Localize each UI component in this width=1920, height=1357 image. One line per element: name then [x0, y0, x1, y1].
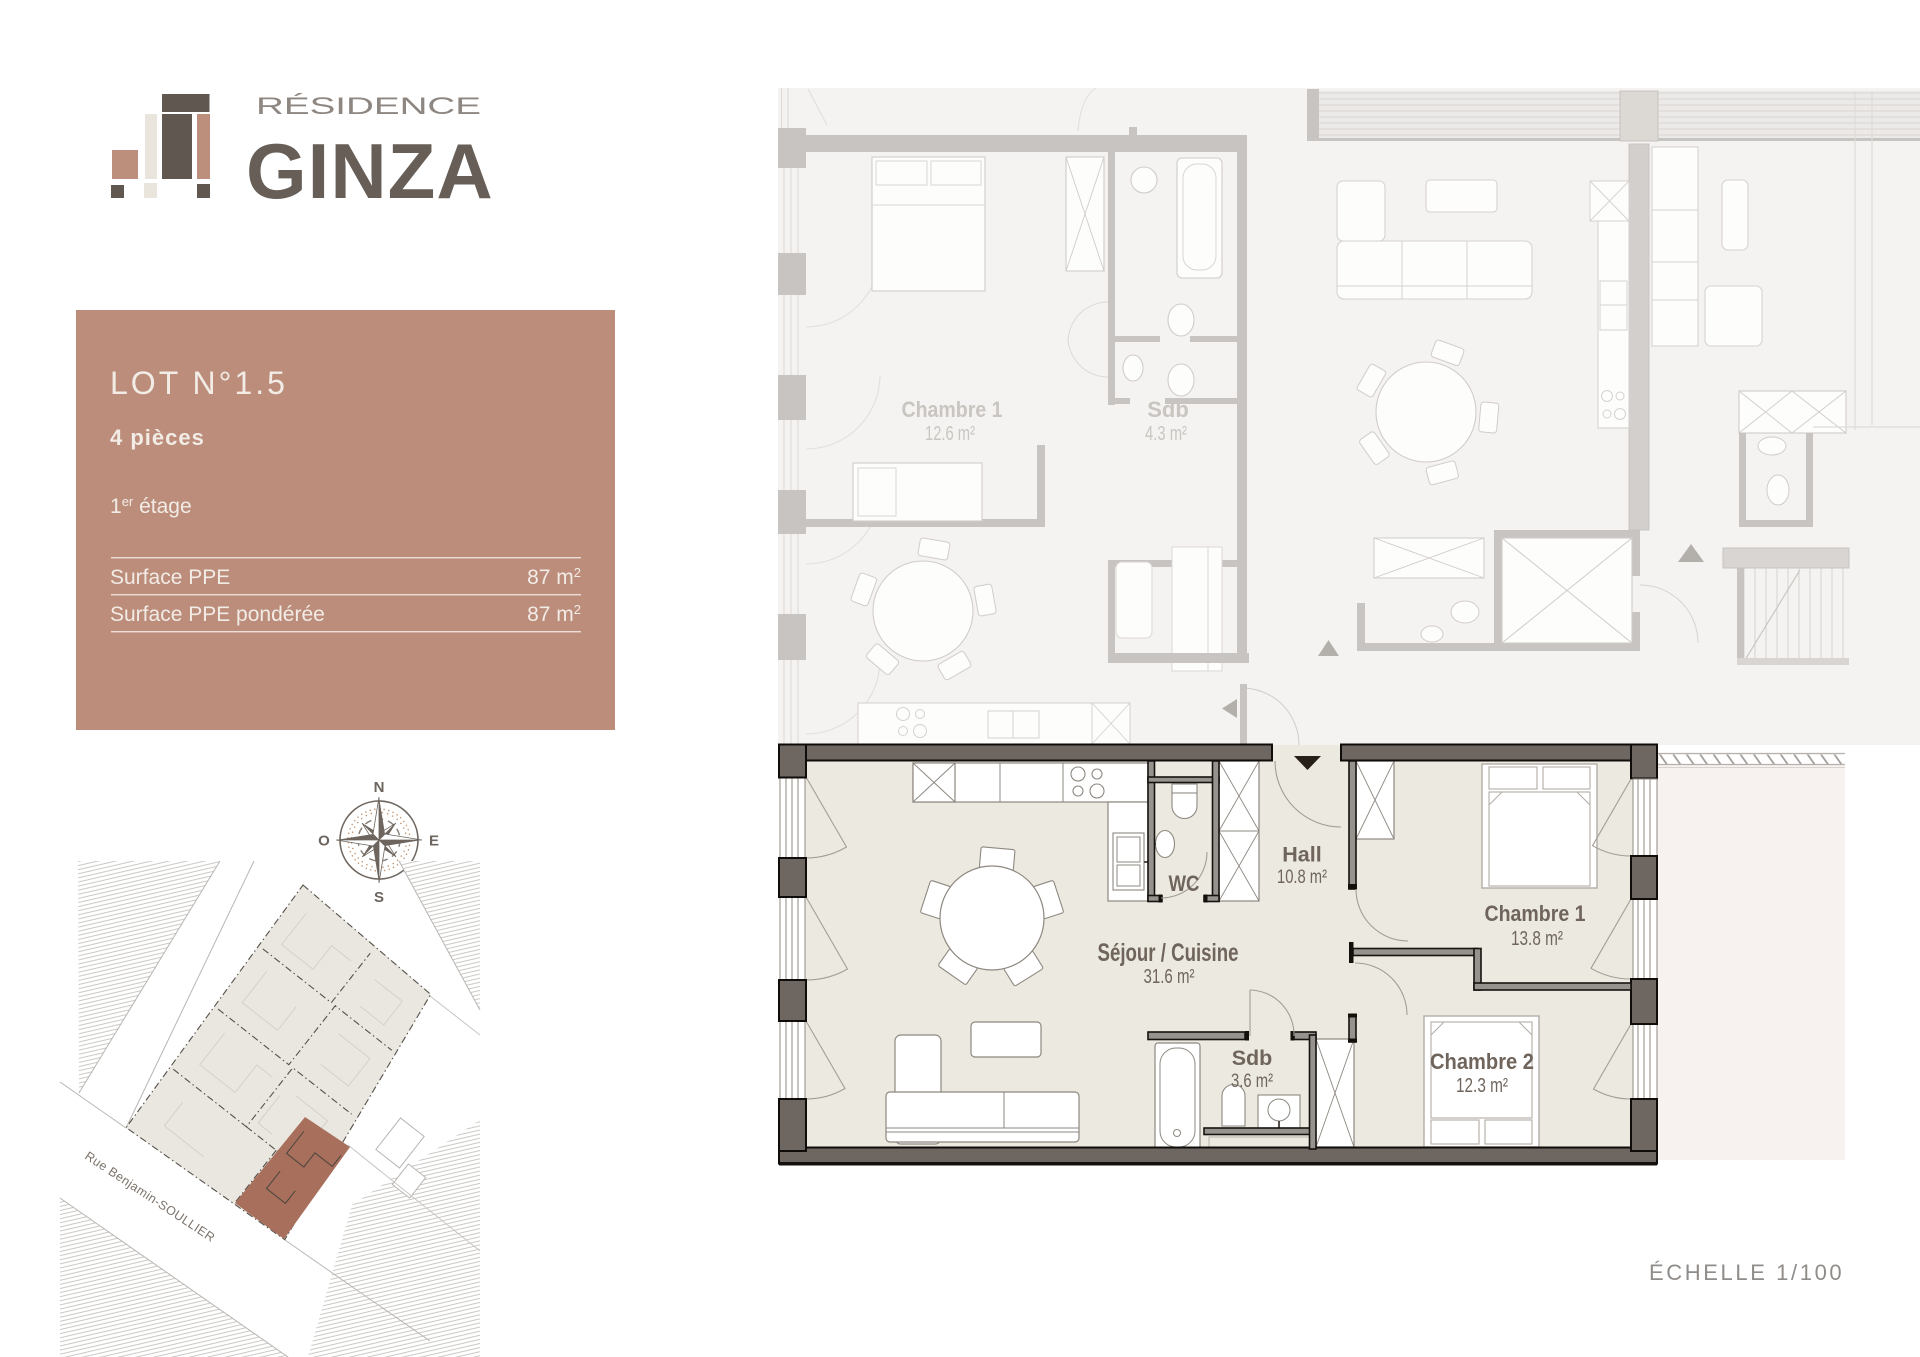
svg-text:N: N	[374, 779, 385, 796]
svg-text:Séjour / Cuisine: Séjour / Cuisine	[1098, 939, 1239, 967]
svg-text:87 m2: 87 m2	[527, 602, 581, 626]
svg-text:87 m2: 87 m2	[527, 565, 581, 589]
svg-text:Chambre 1: Chambre 1	[1485, 901, 1586, 926]
svg-text:RÉSIDENCE: RÉSIDENCE	[256, 93, 481, 120]
svg-text:Sdb: Sdb	[1147, 397, 1189, 422]
svg-text:GINZA: GINZA	[246, 127, 494, 215]
svg-text:31.6 m²: 31.6 m²	[1144, 966, 1195, 988]
svg-text:13.8 m²: 13.8 m²	[1511, 928, 1563, 950]
svg-text:ÉCHELLE 1/100: ÉCHELLE 1/100	[1649, 1260, 1844, 1285]
svg-text:10.8 m²: 10.8 m²	[1277, 866, 1327, 888]
svg-text:WC: WC	[1169, 871, 1200, 896]
svg-text:O: O	[318, 833, 330, 850]
svg-text:Surface PPE pondérée: Surface PPE pondérée	[110, 603, 325, 626]
svg-text:12.6 m²: 12.6 m²	[925, 423, 975, 445]
svg-text:3.6 m²: 3.6 m²	[1231, 1070, 1273, 1092]
svg-text:S: S	[374, 889, 384, 906]
svg-text:Sdb: Sdb	[1232, 1046, 1273, 1070]
svg-text:4 pièces: 4 pièces	[110, 425, 205, 450]
svg-text:Hall: Hall	[1282, 843, 1321, 867]
svg-text:Chambre 2: Chambre 2	[1430, 1049, 1534, 1074]
svg-text:E: E	[429, 833, 439, 850]
svg-text:12.3 m²: 12.3 m²	[1456, 1075, 1508, 1097]
svg-text:Surface PPE: Surface PPE	[110, 566, 230, 589]
svg-text:LOT N°1.5: LOT N°1.5	[110, 365, 288, 401]
svg-text:4.3 m²: 4.3 m²	[1145, 423, 1187, 445]
svg-text:Chambre 1: Chambre 1	[902, 397, 1003, 422]
